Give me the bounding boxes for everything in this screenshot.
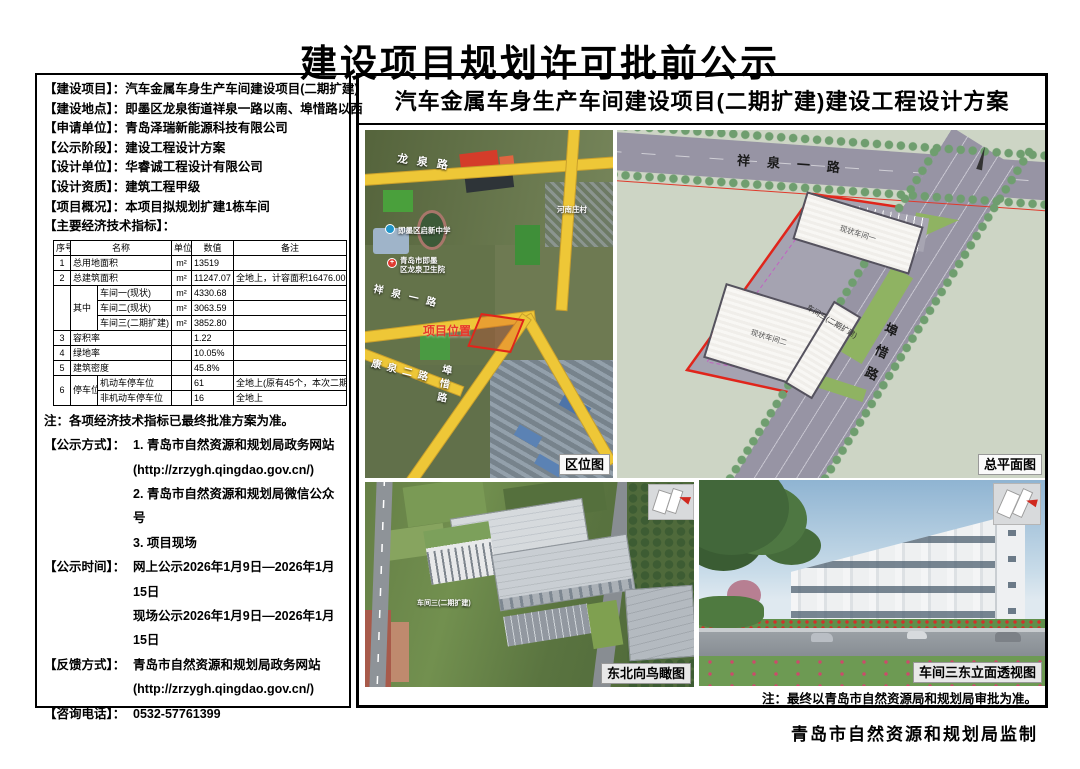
publicity-line: 1. 青岛市自然资源和规划局政务网站 bbox=[133, 433, 342, 457]
cell: 车间三(二期扩建) bbox=[98, 315, 172, 330]
keyplan-inset bbox=[993, 483, 1041, 525]
cell: 停车位 bbox=[71, 375, 98, 405]
cell bbox=[234, 360, 347, 375]
field-label: 【项目概况】： bbox=[44, 198, 125, 218]
contact-phone: 【咨询电话】： 0532-57761399 bbox=[44, 702, 342, 726]
cell bbox=[172, 375, 192, 390]
table-row: 4 绿地率 10.05% bbox=[54, 345, 347, 360]
cell bbox=[234, 315, 347, 330]
field-label: 【建设地点】： bbox=[44, 100, 125, 120]
aerial-parking bbox=[503, 604, 592, 647]
info-field-location: 【建设地点】： 即墨区龙泉街道祥泉一路以南、埠惜路以西 bbox=[44, 100, 342, 120]
cell: 1 bbox=[54, 255, 71, 270]
field-value: 建设工程设计方案 bbox=[125, 139, 225, 159]
aerial-workshop3-label: 车间三(二期扩建) bbox=[417, 598, 471, 608]
info-field-indicators: 【主要经济技术指标】： bbox=[44, 217, 342, 237]
approval-note: 注：最终以青岛市自然资源局和规划局审批为准。 bbox=[762, 688, 1037, 707]
hospital-label-line2: 区龙泉卫生院 bbox=[400, 264, 445, 275]
publicity-lines: 1. 青岛市自然资源和规划局政务网站 (http://zrzygh.qingda… bbox=[133, 433, 342, 555]
design-scheme-panel: 汽车金属车身生产车间建设项目(二期扩建)建设工程设计方案 项目位置 龙泉路 祥泉… bbox=[356, 73, 1048, 708]
cell bbox=[172, 330, 192, 345]
cell: 总建筑面积 bbox=[71, 270, 172, 285]
cell bbox=[234, 345, 347, 360]
publicity-line: 网上公示2026年1月9日—2026年1月15日 bbox=[133, 555, 342, 604]
neighbor-warehouse bbox=[625, 585, 694, 662]
publicity-line: 3. 项目现场 bbox=[133, 531, 342, 555]
cell bbox=[54, 285, 71, 330]
field-value: 本项目拟规划扩建1栋车间 bbox=[125, 198, 269, 218]
perspective-figure: 车间三东立面透视图 bbox=[699, 480, 1045, 686]
field-label: 【建设项目】： bbox=[44, 80, 125, 100]
cell: 全地上 bbox=[234, 390, 347, 405]
cell bbox=[234, 255, 347, 270]
red-arrow-icon bbox=[678, 493, 691, 504]
issuing-authority: 青岛市自然资源和规划局监制 bbox=[791, 720, 1038, 745]
field-label: 【设计单位】： bbox=[44, 158, 125, 178]
aerial-view-figure: 车间三(二期扩建) 东北向鸟瞰图 bbox=[365, 482, 694, 687]
cell: 4330.68 bbox=[192, 285, 234, 300]
perspective-stair-tower bbox=[995, 510, 1025, 636]
car bbox=[811, 633, 833, 642]
cell: 6 bbox=[54, 375, 71, 405]
scheme-title: 汽车金属车身生产车间建设项目(二期扩建)建设工程设计方案 bbox=[359, 76, 1045, 125]
info-field-stage: 【公示阶段】： 建设工程设计方案 bbox=[44, 139, 342, 159]
car bbox=[995, 632, 1021, 642]
cell bbox=[172, 390, 192, 405]
publicity-time: 【公示时间】： 网上公示2026年1月9日—2026年1月15日 现场公示202… bbox=[44, 555, 342, 653]
table-row: 其中 车间一(现状) m² 4330.68 bbox=[54, 285, 347, 300]
village-label: 河南庄村 bbox=[557, 204, 587, 215]
cell bbox=[172, 360, 192, 375]
cell: 3 bbox=[54, 330, 71, 345]
cell bbox=[234, 285, 347, 300]
info-field-overview: 【项目概况】： 本项目拟规划扩建1栋车间 bbox=[44, 198, 342, 218]
location-map-caption: 区位图 bbox=[559, 454, 610, 475]
school-label: 即墨区启新中学 bbox=[398, 225, 451, 236]
aerial-view-caption: 东北向鸟瞰图 bbox=[601, 663, 691, 684]
table-row: 1 总用地面积 m² 13519 bbox=[54, 255, 347, 270]
cell: 4 bbox=[54, 345, 71, 360]
map-field bbox=[515, 225, 540, 265]
header-seq: 序号 bbox=[54, 240, 71, 255]
cell: 10.05% bbox=[192, 345, 234, 360]
cell: 11247.07 bbox=[192, 270, 234, 285]
cell: 5 bbox=[54, 360, 71, 375]
publicity-label: 【公示方式】： bbox=[44, 433, 133, 555]
cell: 61 bbox=[192, 375, 234, 390]
publicity-line: 青岛市自然资源和规划局政务网站 bbox=[133, 653, 321, 677]
table-header-row: 序号 名称 单位 数值 备注 bbox=[54, 240, 347, 255]
info-field-project: 【建设项目】： 汽车金属车身生产车间建设项目(二期扩建) bbox=[44, 80, 342, 100]
publicity-line: 2. 青岛市自然资源和规划局微信公众号 bbox=[133, 482, 342, 531]
table-row: 车间二(现状) m² 3063.59 bbox=[54, 300, 347, 315]
phone-number: 0532-57761399 bbox=[133, 702, 221, 726]
aerial-office-green-roof bbox=[423, 521, 497, 585]
cell: m² bbox=[172, 255, 192, 270]
table-row: 2 总建筑面积 m² 11247.07 全地上，计容面积16476.00 bbox=[54, 270, 347, 285]
office-facade-windows bbox=[426, 541, 496, 584]
publicity-method: 【公示方式】： 1. 青岛市自然资源和规划局政务网站 (http://zrzyg… bbox=[44, 433, 342, 555]
cell: 16 bbox=[192, 390, 234, 405]
cell: m² bbox=[172, 315, 192, 330]
cell: 2 bbox=[54, 270, 71, 285]
cell: 机动车停车位 bbox=[98, 375, 172, 390]
cell: 45.8% bbox=[192, 360, 234, 375]
location-map-figure: 项目位置 龙泉路 祥泉一路 康泉二路 埠惜路 河南庄村 即墨区启新中学 + 青岛… bbox=[365, 130, 613, 478]
indicators-note: 注：各项经济技术指标已最终批准方案为准。 bbox=[44, 409, 342, 433]
header-unit: 单位 bbox=[172, 240, 192, 255]
keyplan-inset bbox=[648, 484, 694, 520]
info-field-applicant: 【申请单位】： 青岛泽瑞新能源科技有限公司 bbox=[44, 119, 342, 139]
field-value: 建筑工程甲级 bbox=[125, 178, 200, 198]
cell: 全地上(原有45个，本次二期扩建16个) bbox=[234, 375, 347, 390]
building-label: 现状车间二 bbox=[749, 326, 788, 347]
cell: 其中 bbox=[71, 285, 98, 330]
perspective-building-facade bbox=[791, 518, 1024, 635]
cell: m² bbox=[172, 285, 192, 300]
publicity-label: 【公示时间】： bbox=[44, 555, 133, 653]
header-note: 备注 bbox=[234, 240, 347, 255]
cell: 1.22 bbox=[192, 330, 234, 345]
road bbox=[699, 632, 1045, 658]
publicity-lines: 0532-57761399 bbox=[133, 702, 221, 726]
publicity-label: 【咨询电话】： bbox=[44, 702, 133, 726]
feedback-method: 【反馈方式】： 青岛市自然资源和规划局政务网站 (http://zrzygh.q… bbox=[44, 653, 342, 702]
cell: 绿地率 bbox=[71, 345, 172, 360]
info-field-designer: 【设计单位】： 华睿诚工程设计有限公司 bbox=[44, 158, 342, 178]
cell: 容积率 bbox=[71, 330, 172, 345]
cell: 13519 bbox=[192, 255, 234, 270]
cell: 3063.59 bbox=[192, 300, 234, 315]
project-info-panel: 【建设项目】： 汽车金属车身生产车间建设项目(二期扩建) 【建设地点】： 即墨区… bbox=[35, 73, 351, 708]
field-value: 即墨区龙泉街道祥泉一路以南、埠惜路以西 bbox=[125, 100, 363, 120]
cell: 建筑密度 bbox=[71, 360, 172, 375]
hospital-cross-icon: + bbox=[387, 258, 397, 268]
building-label: 现状车间一 bbox=[838, 222, 877, 243]
map-field bbox=[383, 190, 413, 212]
economic-indicators-table: 序号 名称 单位 数值 备注 1 总用地面积 m² 13519 2 总建筑面积 … bbox=[53, 240, 347, 406]
cell: m² bbox=[172, 270, 192, 285]
red-roof-buildings bbox=[391, 622, 409, 682]
publicity-lines: 网上公示2026年1月9日—2026年1月15日 现场公示2026年1月9日—2… bbox=[133, 555, 342, 653]
info-field-qualification: 【设计资质】： 建筑工程甲级 bbox=[44, 178, 342, 198]
field-value: 汽车金属车身生产车间建设项目(二期扩建) bbox=[125, 80, 358, 100]
cell bbox=[234, 300, 347, 315]
site-plan-figure: 现状车间一 现状车间二 车间三(二期扩建) 祥泉一路 埠惜路 总平面图 bbox=[617, 130, 1045, 478]
field-label: 【主要经济技术指标】： bbox=[44, 217, 175, 237]
cell: 非机动车停车位 bbox=[98, 390, 172, 405]
cell bbox=[172, 345, 192, 360]
school-marker-icon bbox=[385, 224, 395, 234]
cell: 全地上，计容面积16476.00 bbox=[234, 270, 347, 285]
field-label: 【设计资质】： bbox=[44, 178, 125, 198]
table-row: 5 建筑密度 45.8% bbox=[54, 360, 347, 375]
table-row: 3 容积率 1.22 bbox=[54, 330, 347, 345]
publicity-line: 现场公示2026年1月9日—2026年1月15日 bbox=[133, 604, 342, 653]
field-value: 青岛泽瑞新能源科技有限公司 bbox=[125, 119, 288, 139]
cell: 车间二(现状) bbox=[98, 300, 172, 315]
perspective-caption: 车间三东立面透视图 bbox=[913, 662, 1042, 683]
cell bbox=[234, 330, 347, 345]
tree-foliage bbox=[699, 480, 789, 555]
site-plan-caption: 总平面图 bbox=[978, 454, 1042, 475]
bushes bbox=[699, 596, 764, 628]
table-row: 6 停车位 机动车停车位 61 全地上(原有45个，本次二期扩建16个) bbox=[54, 375, 347, 390]
publicity-line-url: (http://zrzygh.qingdao.gov.cn/) bbox=[133, 677, 321, 701]
publicity-line-url: (http://zrzygh.qingdao.gov.cn/) bbox=[133, 458, 342, 482]
table-row: 非机动车停车位 16 全地上 bbox=[54, 390, 347, 405]
cell: 总用地面积 bbox=[71, 255, 172, 270]
publicity-lines: 青岛市自然资源和规划局政务网站 (http://zrzygh.qingdao.g… bbox=[133, 653, 321, 702]
field-label: 【公示阶段】： bbox=[44, 139, 125, 159]
header-name: 名称 bbox=[71, 240, 172, 255]
project-location-label: 项目位置 bbox=[423, 322, 471, 339]
header-value: 数值 bbox=[192, 240, 234, 255]
cell: m² bbox=[172, 300, 192, 315]
field-value: 华睿诚工程设计有限公司 bbox=[125, 158, 263, 178]
car bbox=[907, 631, 927, 639]
cell: 3852.80 bbox=[192, 315, 234, 330]
field-label: 【申请单位】： bbox=[44, 119, 125, 139]
publicity-label: 【反馈方式】： bbox=[44, 653, 133, 702]
table-row: 车间三(二期扩建) m² 3852.80 bbox=[54, 315, 347, 330]
cell: 车间一(现状) bbox=[98, 285, 172, 300]
